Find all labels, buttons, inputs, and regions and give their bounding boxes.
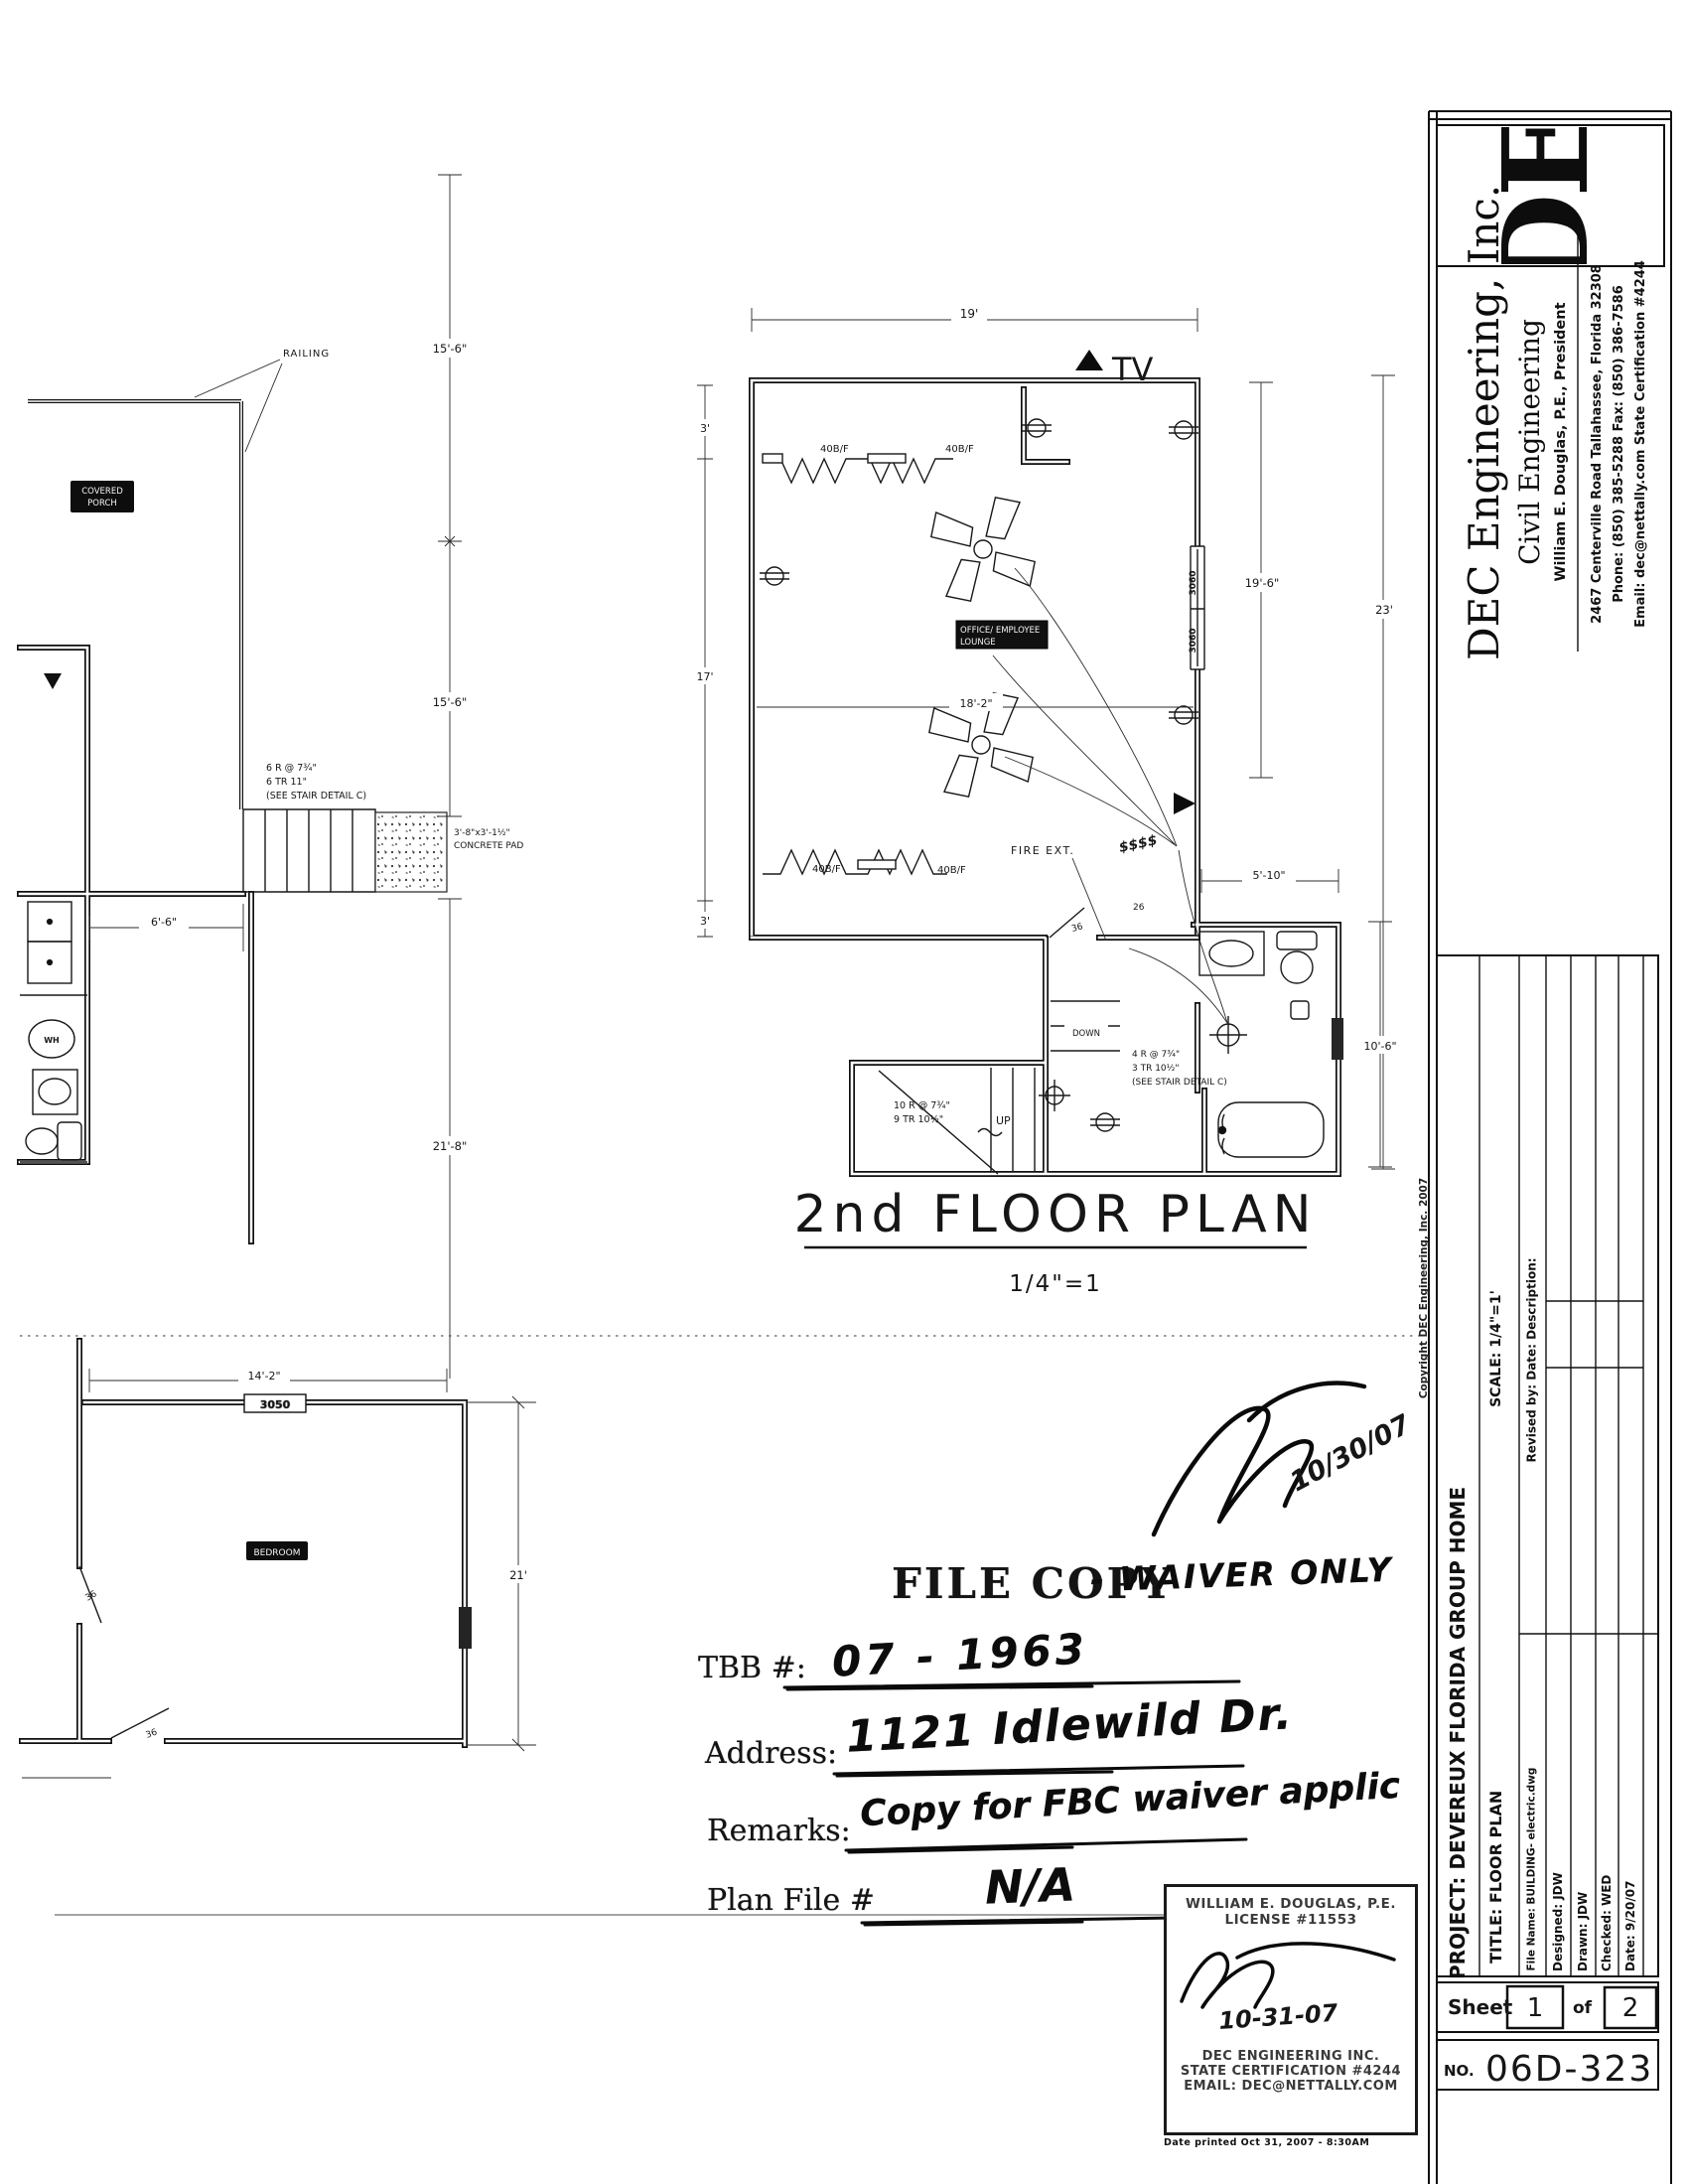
drawing-number: 06D-323 bbox=[1485, 2049, 1653, 2090]
dim-label: 3' bbox=[700, 422, 710, 435]
fire-ext-label: FIRE EXT. bbox=[1011, 844, 1074, 857]
dim-label: 18'-2" bbox=[959, 697, 992, 710]
ceiling-fan bbox=[922, 489, 1045, 611]
pe-certification: STATE CERTIFICATION #4244 bbox=[1167, 2064, 1415, 2079]
porch-stairs bbox=[243, 809, 375, 892]
right-wall-windows: 3060 3060 bbox=[1189, 546, 1205, 669]
drawn-field: Drawn: JDW bbox=[1576, 1634, 1590, 1971]
company-phone-fax: Phone: (850) 385-5288 Fax: (850) 386-758… bbox=[1612, 220, 1627, 667]
plan-title: 2nd FLOOR PLAN bbox=[793, 1185, 1317, 1244]
window-size-tag: 3060 bbox=[1189, 628, 1198, 653]
covered-porch-label: COVERED PORCH bbox=[70, 481, 134, 512]
of-label: of bbox=[1573, 1998, 1593, 2018]
jack-triangle-icon bbox=[1174, 793, 1196, 814]
stairs-up: UP 10 R @ 7¾" 9 TR 10½" bbox=[879, 1068, 1035, 1174]
stair-note: 4 R @ 7¾" bbox=[1132, 1050, 1180, 1060]
stair-note: 9 TR 10½" bbox=[894, 1114, 943, 1125]
railing-label: RAILING bbox=[283, 349, 330, 360]
dim-label: 21' bbox=[509, 1568, 527, 1582]
pe-name: WILLIAM E. DOUGLAS, P.E. bbox=[1167, 1896, 1415, 1912]
dim-label: 10'-6" bbox=[1363, 1040, 1396, 1053]
dim-label: 15'-6" bbox=[433, 695, 468, 709]
designed-field: Designed: JDW bbox=[1551, 1634, 1565, 1971]
drawing-sheet: WH 3050 COVERED PORCH BEDROOM RAILING 6 … bbox=[0, 0, 1688, 2184]
down-label: DOWN bbox=[1072, 1029, 1100, 1039]
total-sheets: 2 bbox=[1622, 1993, 1639, 2023]
dimensions-first-floor: 15'-6" 15'-6" 6'-6" 21'-8" 14'-2" 21' 36… bbox=[84, 175, 537, 1751]
sheet-number: 1 bbox=[1527, 1993, 1544, 2023]
heater-label: 40B/F bbox=[812, 864, 841, 875]
window-tag-smudge bbox=[1332, 1018, 1343, 1060]
window-size-tag: 3050 bbox=[260, 1398, 291, 1411]
dim-label: 19'-6" bbox=[1245, 576, 1280, 590]
plumbing-fixtures bbox=[20, 902, 87, 1162]
dim-label: 21'-8" bbox=[433, 1139, 468, 1153]
company-name: DEC Engineering, Inc. bbox=[1459, 223, 1510, 660]
pad-note: 3'-8"x3'-1½" bbox=[454, 828, 510, 838]
heater-label: 40B/F bbox=[820, 444, 849, 455]
company-president: William E. Douglas, P.E., President bbox=[1552, 223, 1570, 660]
jack-triangle-icon bbox=[44, 673, 62, 689]
stairs-down: DOWN bbox=[1051, 1001, 1120, 1051]
revised-header: Revised by: Date: Description: bbox=[1525, 1205, 1540, 1463]
stair-note: (SEE STAIR DETAIL C) bbox=[1132, 1078, 1227, 1088]
checked-field: Checked: WED bbox=[1600, 1634, 1614, 1971]
tv-label: TV bbox=[1111, 351, 1154, 388]
company-division: Civil Engineering bbox=[1513, 223, 1547, 660]
dim-label: 3' bbox=[700, 915, 710, 928]
dim-label: 5'-10" bbox=[1252, 869, 1285, 882]
approval-signature: 10/30/07 bbox=[1154, 1383, 1416, 1534]
window-tag-smudge bbox=[459, 1607, 472, 1649]
address-label: Address: bbox=[705, 1736, 837, 1771]
window-size-tag: 3060 bbox=[1189, 570, 1198, 595]
water-heater-label: WH bbox=[44, 1036, 60, 1045]
bathroom-fixtures bbox=[1199, 932, 1324, 1157]
pe-signature: 10-31-07 bbox=[1168, 1928, 1414, 2045]
dim-label: 19' bbox=[960, 307, 979, 321]
porch-railing bbox=[28, 401, 241, 809]
tbb-label: TBB #: bbox=[698, 1651, 806, 1685]
remarks-label: Remarks: bbox=[707, 1814, 851, 1848]
stair-note: (SEE STAIR DETAIL C) bbox=[266, 791, 366, 801]
dim-label: 17' bbox=[696, 670, 713, 683]
copyright-note: Copyright DEC Engineering, Inc. 2007 bbox=[1417, 1154, 1431, 1422]
ceiling-light bbox=[1209, 1016, 1247, 1054]
plan-file-value: N/A bbox=[984, 1857, 1076, 1914]
pe-stamp-box: WILLIAM E. DOUGLAS, P.E. LICENSE #11553 … bbox=[1164, 1884, 1418, 2135]
heater-label: 40B/F bbox=[937, 865, 966, 876]
duplex-outlets bbox=[760, 419, 1198, 1131]
pe-company: DEC ENGINEERING INC. bbox=[1167, 2049, 1415, 2064]
lounge-label: OFFICE/ EMPLOYEE LOUNGE bbox=[956, 621, 1048, 649]
tv-jack-triangle-icon bbox=[1075, 350, 1103, 370]
door-size-tag: 36 bbox=[145, 1727, 159, 1740]
date-field: Date: 9/20/07 bbox=[1623, 1634, 1637, 1971]
company-email-cert: Email: dec@nettally.com State Certificat… bbox=[1633, 220, 1649, 667]
plan-file-label: Plan File # bbox=[707, 1883, 875, 1918]
door-size-tag: 36 bbox=[84, 1589, 99, 1604]
stair-note: 3 TR 10½" bbox=[1132, 1064, 1180, 1074]
second-floor-plan: 3060 3060 40B/F 40B/F 40B/F 40B/F bbox=[689, 304, 1406, 1297]
svg-text:BEDROOM: BEDROOM bbox=[254, 1548, 301, 1558]
dim-label: 14'-2" bbox=[247, 1370, 280, 1383]
concrete-pad bbox=[375, 812, 447, 892]
baseboard-heaters bbox=[763, 454, 953, 874]
approval-date: 10/30/07 bbox=[1285, 1409, 1416, 1499]
drawing-title: TITLE: FLOOR PLAN bbox=[1486, 1636, 1506, 1964]
pe-signature-date: 10-31-07 bbox=[1217, 1999, 1338, 2035]
plan-linework: WH 3050 COVERED PORCH BEDROOM RAILING 6 … bbox=[0, 0, 1688, 2184]
pe-email: EMAIL: DEC@NETTALLY.COM bbox=[1167, 2079, 1415, 2094]
stair-note: 6 R @ 7¾" bbox=[266, 763, 317, 774]
plan-scale: 1/4"=1 bbox=[1009, 1271, 1102, 1297]
bedroom-label: BEDROOM bbox=[246, 1541, 308, 1560]
stair-note: 10 R @ 7¾" bbox=[894, 1100, 950, 1111]
heater-label: 40B/F bbox=[945, 444, 974, 455]
smoke-detector-marks: $$$$ bbox=[1118, 832, 1159, 856]
svg-text:LOUNGE: LOUNGE bbox=[960, 638, 996, 648]
scale-field: SCALE: 1/4"=1' bbox=[1487, 1264, 1505, 1433]
pad-note: CONCRETE PAD bbox=[454, 841, 523, 851]
number-label: NO. bbox=[1444, 2062, 1475, 2080]
pe-license: LICENSE #11553 bbox=[1167, 1912, 1415, 1928]
stair-note: 6 TR 11" bbox=[266, 777, 307, 788]
printed-note: Date printed Oct 31, 2007 - 8:30AM bbox=[1164, 2137, 1369, 2148]
sheet-label: Sheet bbox=[1448, 1995, 1513, 2019]
company-address: 2467 Centerville Road Tallahassee, Flori… bbox=[1590, 220, 1606, 667]
bedroom-window: 3050 bbox=[244, 1394, 306, 1412]
dim-label: 23' bbox=[1375, 603, 1393, 617]
svg-text:COVERED: COVERED bbox=[81, 487, 123, 497]
file-name-field: File Name: BUILDING- electric.dwg bbox=[1526, 1634, 1539, 1971]
project-name: PROJECT: DEVEREUX FLORIDA GROUP HOME bbox=[1445, 956, 1471, 1979]
dim-label: 6'-6" bbox=[151, 916, 177, 929]
up-label: UP bbox=[996, 1114, 1011, 1127]
svg-text:PORCH: PORCH bbox=[87, 499, 117, 509]
door-size-tag: 36 bbox=[1070, 922, 1084, 935]
dim-label: 15'-6" bbox=[433, 342, 468, 356]
svg-text:OFFICE/ EMPLOYEE: OFFICE/ EMPLOYEE bbox=[960, 626, 1040, 636]
door-size-tag: 26 bbox=[1133, 903, 1145, 913]
